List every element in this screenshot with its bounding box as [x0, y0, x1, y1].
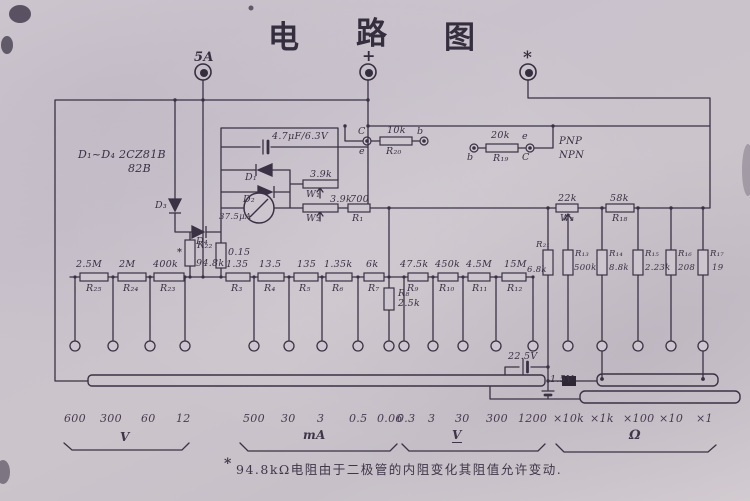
socket-right-e-label: e — [522, 131, 528, 142]
socket-left-b-label: b — [417, 126, 423, 137]
r15-value: 2.23k — [645, 263, 671, 273]
page-title-char1: 电 — [268, 12, 299, 57]
r18-value: 58k — [610, 193, 629, 204]
r23-name: R₂₃ — [160, 283, 176, 294]
circuit-wiring — [55, 80, 710, 399]
range-vdc-12: 12 — [176, 412, 191, 425]
schematic-drawing — [0, 0, 750, 501]
r23-value: 400k — [153, 259, 178, 270]
r21-name: R₂₁ — [536, 240, 550, 250]
r4-value: 13.5 — [259, 259, 281, 270]
range-ohm-x10k: ×10k — [553, 412, 584, 425]
range-ma-3: 3 — [317, 412, 324, 425]
r6-name: R₆ — [332, 283, 344, 294]
r22-value: 94.8k — [196, 258, 224, 269]
w3-value: 22k — [558, 193, 577, 204]
r10-value: 450k — [435, 259, 460, 270]
r19-value: 20k — [491, 130, 510, 141]
switch-rail-main — [88, 375, 545, 386]
footnote-marker: * — [224, 456, 233, 472]
w2-name: W₂ — [306, 213, 320, 224]
w2-value: 3.9k — [330, 194, 352, 205]
rotary-switch-rails — [88, 374, 740, 403]
r25-name: R₂₅ — [86, 283, 102, 294]
diode-d3 — [169, 199, 181, 211]
r1-value: 700 — [350, 194, 369, 205]
socket-right-b-label: b — [467, 152, 473, 163]
range-ma-30: 30 — [281, 412, 296, 425]
r15-name: R₁₅ — [645, 249, 659, 259]
group-label-vac: V — [452, 428, 462, 443]
range-vdc-300: 300 — [100, 412, 122, 425]
r7-value: 6k — [366, 259, 378, 270]
group-label-vdc: V — [120, 430, 130, 444]
range-ohm-x10: ×10 — [659, 412, 683, 425]
schematic-page: 电 路 图 5A + * D₁~D₄ 2CZ81B 82B 4.7μF/6.3V… — [0, 0, 750, 501]
range-vac-3: 3 — [428, 412, 435, 425]
r7-name: R₇ — [368, 283, 380, 294]
r11-value: 4.5M — [466, 259, 492, 270]
range-vdc-60: 60 — [141, 412, 156, 425]
r14-value: 8.8k — [609, 263, 629, 273]
r18-name: R₁₈ — [612, 213, 628, 224]
range-vac-300: 300 — [486, 412, 508, 425]
terminal-5a-label: 5A — [194, 50, 214, 65]
r9-value: 47.5k — [400, 259, 428, 270]
diode-d2-label: D₂ — [243, 194, 255, 205]
r3-name: R₃ — [231, 283, 243, 294]
r11-name: R₁₁ — [472, 283, 488, 294]
range-ohm-x100: ×100 — [623, 412, 654, 425]
battery-22v5-label: 22.5V — [508, 351, 538, 362]
r5-name: R₅ — [299, 283, 311, 294]
transistor-type-pnp: PNP — [559, 136, 582, 147]
r3-value: 1.35 — [226, 259, 248, 270]
diode-d1-label: D₁ — [245, 172, 257, 183]
range-vdc-600: 600 — [64, 412, 86, 425]
r16-name: R₁₆ — [678, 249, 692, 259]
range-vac-0-3: 0.3 — [397, 412, 415, 425]
r10-name: R₁₀ — [439, 283, 455, 294]
diode-d3-label: D₃ — [155, 200, 167, 211]
r20-name: R₂₀ — [386, 146, 402, 157]
diode-type-note-line2: 82B — [128, 162, 151, 175]
panel-terminals — [195, 64, 536, 80]
r17-value: 19 — [712, 263, 723, 273]
r2-value: 0.15 — [228, 247, 250, 258]
r13-name: R₁₃ — [575, 249, 589, 259]
page-title-char3: 图 — [444, 12, 475, 57]
r24-name: R₂₄ — [123, 283, 139, 294]
r20-value: 10k — [387, 125, 406, 136]
range-ma-500: 500 — [243, 412, 265, 425]
r13-value: 500k — [574, 263, 597, 273]
terminal-star-label: * — [523, 48, 532, 68]
range-vac-1200: 1200 — [518, 412, 547, 425]
switch-rail-ohm-lower — [580, 391, 740, 403]
r5-value: 135 — [297, 259, 316, 270]
socket-left-e-label: e — [359, 146, 365, 157]
r22-name: R₂₂ — [197, 240, 213, 251]
w1-name: W₁ — [306, 189, 320, 200]
rotary-switch-contacts — [70, 341, 708, 351]
group-label-ma: mA — [303, 428, 326, 442]
range-ma-0-5: 0.5 — [349, 412, 367, 425]
switch-rail-ohm-upper — [597, 374, 718, 386]
r24-value: 2M — [119, 259, 135, 270]
r16-value: 208 — [678, 263, 695, 273]
transistor-type-npn: NPN — [559, 150, 584, 161]
w1-value: 3.9k — [310, 169, 332, 180]
r8-value: 2.5k — [398, 298, 420, 309]
r14-name: R₁₄ — [609, 249, 623, 259]
range-ohm-x1k: ×1k — [590, 412, 614, 425]
group-label-ohm: Ω — [629, 428, 641, 443]
range-braces — [64, 443, 716, 452]
r12-name: R₁₂ — [507, 283, 523, 294]
socket-right-c-label: C — [522, 152, 530, 163]
terminal-plus-label: + — [362, 46, 376, 65]
range-vac-30: 30 — [455, 412, 470, 425]
battery-1v5-label: 1.5V — [550, 374, 573, 385]
diode-type-note-line1: D₁~D₄ 2CZ81B — [78, 148, 166, 161]
r12-value: 15M — [504, 259, 527, 270]
r19-name: R₁₉ — [493, 153, 509, 164]
w3-name: W₃ — [560, 213, 574, 224]
r1-name: R₁ — [352, 213, 364, 224]
r6-value: 1.35k — [324, 259, 352, 270]
range-ohm-x1: ×1 — [696, 412, 713, 425]
capacitor-value: 4.7μF/6.3V — [272, 131, 328, 142]
r21-value: 6.8k — [527, 265, 547, 275]
r4-name: R₄ — [264, 283, 276, 294]
r25-value: 2.5M — [76, 259, 102, 270]
socket-left-c-label: C — [358, 126, 366, 137]
diode-d1 — [258, 164, 272, 176]
r17-name: R₁₇ — [710, 249, 724, 259]
meter-value: 37.5μA — [219, 212, 251, 222]
footnote-text: 94.8kΩ电阻由于二极管的内阻变化其阻值允许变动. — [236, 459, 562, 478]
r22-footnote-star: * — [177, 247, 182, 258]
